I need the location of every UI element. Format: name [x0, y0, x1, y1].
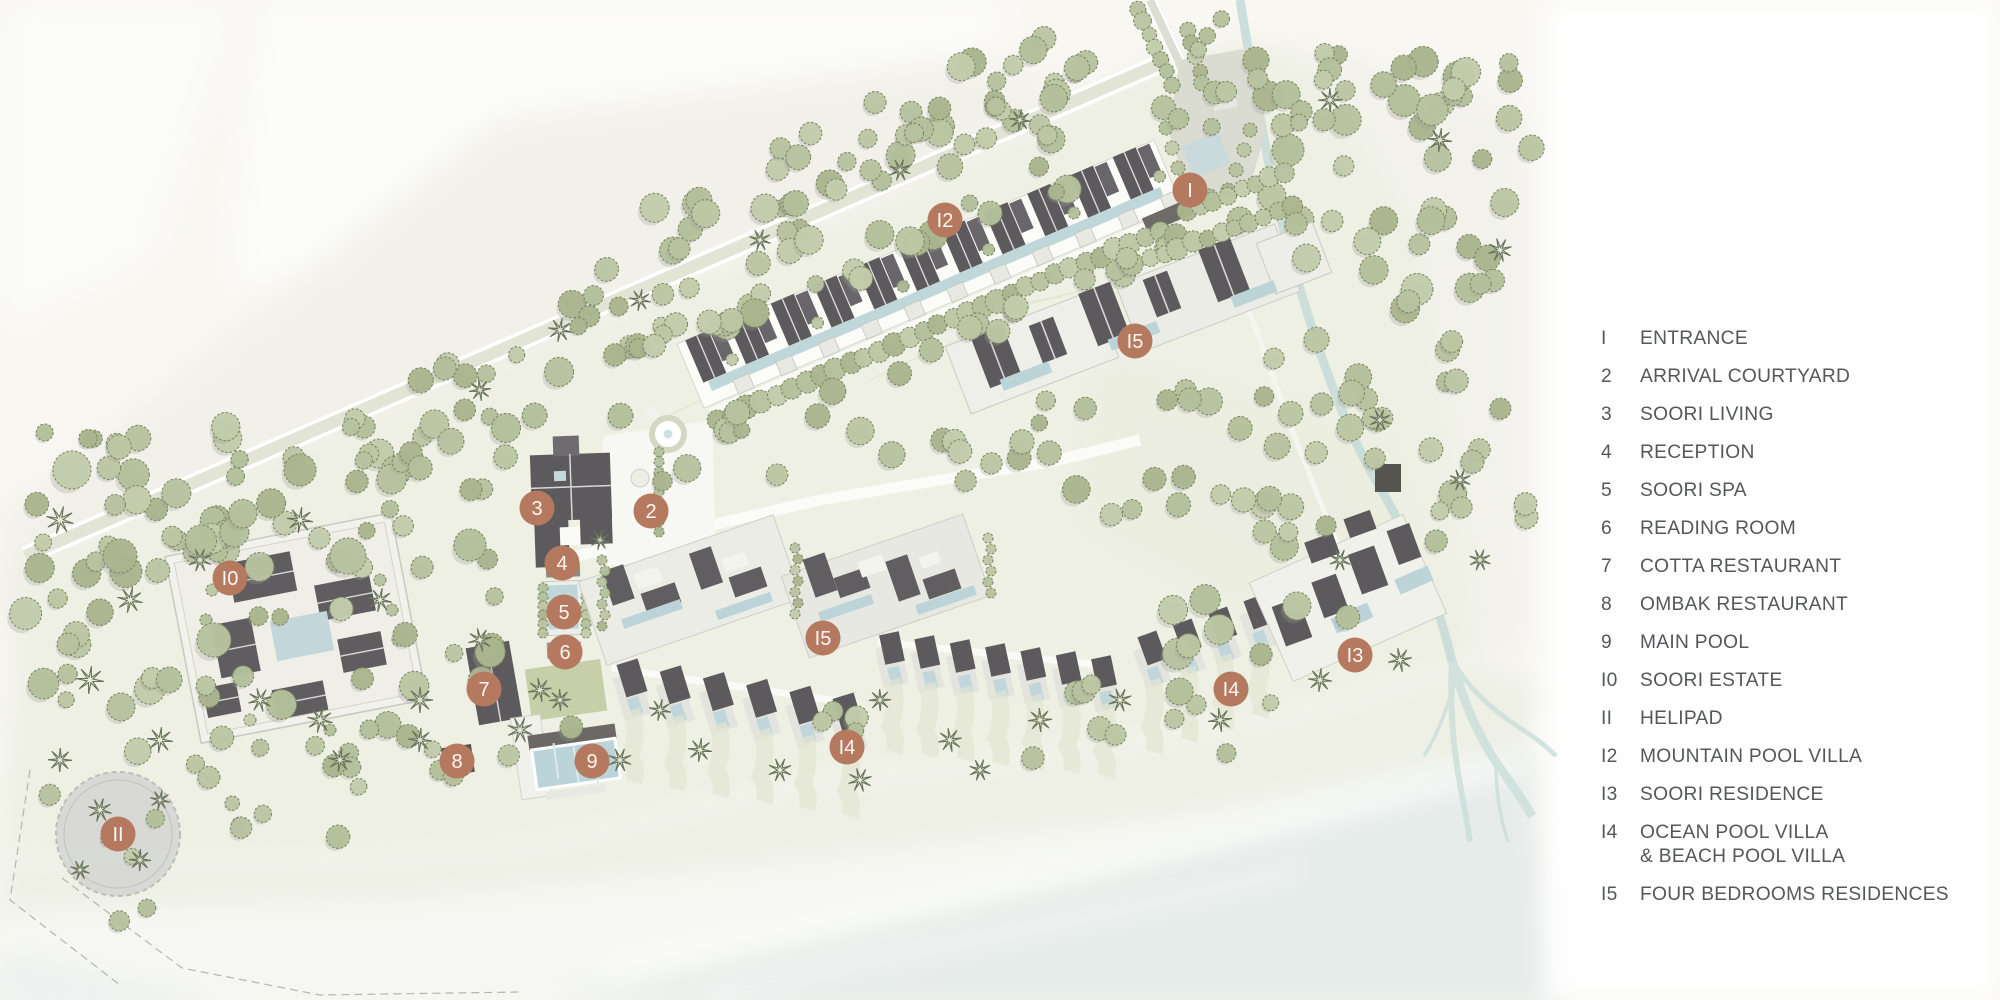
svg-text:I4: I4	[1601, 822, 1618, 843]
svg-text:I5: I5	[1601, 884, 1618, 905]
svg-text:4: 4	[1601, 442, 1612, 463]
svg-text:5: 5	[558, 602, 569, 624]
svg-text:I5: I5	[815, 628, 832, 650]
svg-text:I3: I3	[1601, 784, 1618, 805]
svg-text:SOORI ESTATE: SOORI ESTATE	[1640, 670, 1783, 691]
svg-text:MOUNTAIN POOL VILLA: MOUNTAIN POOL VILLA	[1640, 746, 1862, 767]
svg-text:OCEAN POOL VILLA: OCEAN POOL VILLA	[1640, 822, 1829, 843]
svg-text:RECEPTION: RECEPTION	[1640, 442, 1755, 463]
svg-text:2: 2	[1601, 366, 1612, 387]
svg-text:READING ROOM: READING ROOM	[1640, 518, 1796, 539]
svg-text:I5: I5	[1127, 331, 1144, 353]
svg-text:5: 5	[1601, 480, 1612, 501]
svg-text:MAIN POOL: MAIN POOL	[1640, 632, 1749, 653]
svg-text:7: 7	[1601, 556, 1612, 577]
svg-text:ARRIVAL COURTYARD: ARRIVAL COURTYARD	[1640, 366, 1850, 387]
svg-text:8: 8	[451, 751, 462, 773]
svg-text:I0: I0	[1601, 670, 1618, 691]
svg-text:I3: I3	[1347, 645, 1364, 667]
svg-text:3: 3	[1601, 404, 1612, 425]
svg-text:I: I	[1601, 328, 1607, 349]
svg-text:FOUR BEDROOMS RESIDENCES: FOUR BEDROOMS RESIDENCES	[1640, 884, 1949, 905]
svg-text:7: 7	[478, 679, 489, 701]
svg-text:I2: I2	[1601, 746, 1618, 767]
svg-text:9: 9	[586, 751, 597, 773]
svg-text:6: 6	[559, 642, 570, 664]
svg-text:I4: I4	[1223, 679, 1240, 701]
svg-text:2: 2	[645, 501, 656, 523]
svg-text:COTTA RESTAURANT: COTTA RESTAURANT	[1640, 556, 1841, 577]
svg-text:9: 9	[1601, 632, 1612, 653]
svg-text:3: 3	[531, 498, 542, 520]
svg-text:I2: I2	[937, 210, 954, 232]
svg-text:6: 6	[1601, 518, 1612, 539]
svg-text:& BEACH POOL VILLA: & BEACH POOL VILLA	[1640, 846, 1845, 867]
svg-text:ENTRANCE: ENTRANCE	[1640, 328, 1748, 349]
svg-text:I0: I0	[222, 568, 239, 590]
svg-text:HELIPAD: HELIPAD	[1640, 708, 1723, 729]
svg-text:II: II	[1601, 708, 1612, 729]
svg-text:8: 8	[1601, 594, 1612, 615]
svg-text:II: II	[112, 824, 123, 846]
svg-text:SOORI SPA: SOORI SPA	[1640, 480, 1747, 501]
svg-text:I4: I4	[839, 737, 856, 759]
svg-text:I: I	[1187, 180, 1193, 202]
svg-text:4: 4	[556, 553, 567, 575]
svg-text:OMBAK RESTAURANT: OMBAK RESTAURANT	[1640, 594, 1848, 615]
svg-text:SOORI LIVING: SOORI LIVING	[1640, 404, 1774, 425]
svg-text:SOORI RESIDENCE: SOORI RESIDENCE	[1640, 784, 1824, 805]
